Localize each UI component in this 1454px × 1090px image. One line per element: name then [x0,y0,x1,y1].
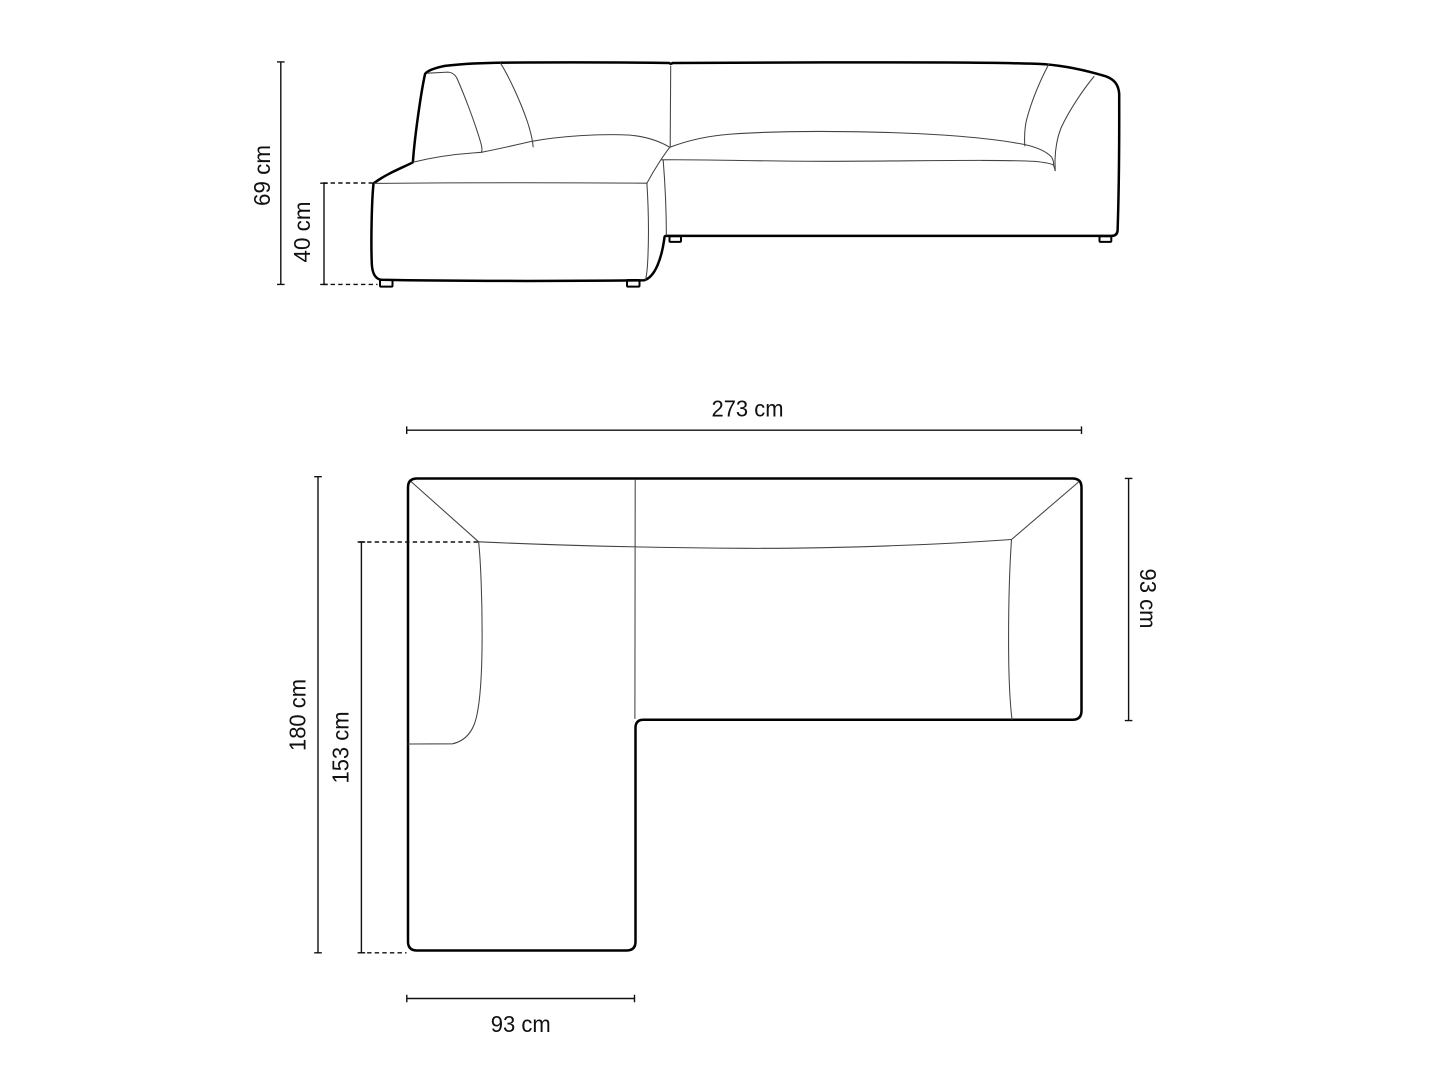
svg-text:69 cm: 69 cm [249,145,275,206]
svg-text:153 cm: 153 cm [328,712,354,784]
svg-text:93 cm: 93 cm [491,1011,551,1037]
svg-text:93 cm: 93 cm [1135,569,1161,629]
svg-text:273 cm: 273 cm [712,396,784,422]
svg-text:180 cm: 180 cm [284,679,310,751]
svg-text:40 cm: 40 cm [289,202,315,263]
